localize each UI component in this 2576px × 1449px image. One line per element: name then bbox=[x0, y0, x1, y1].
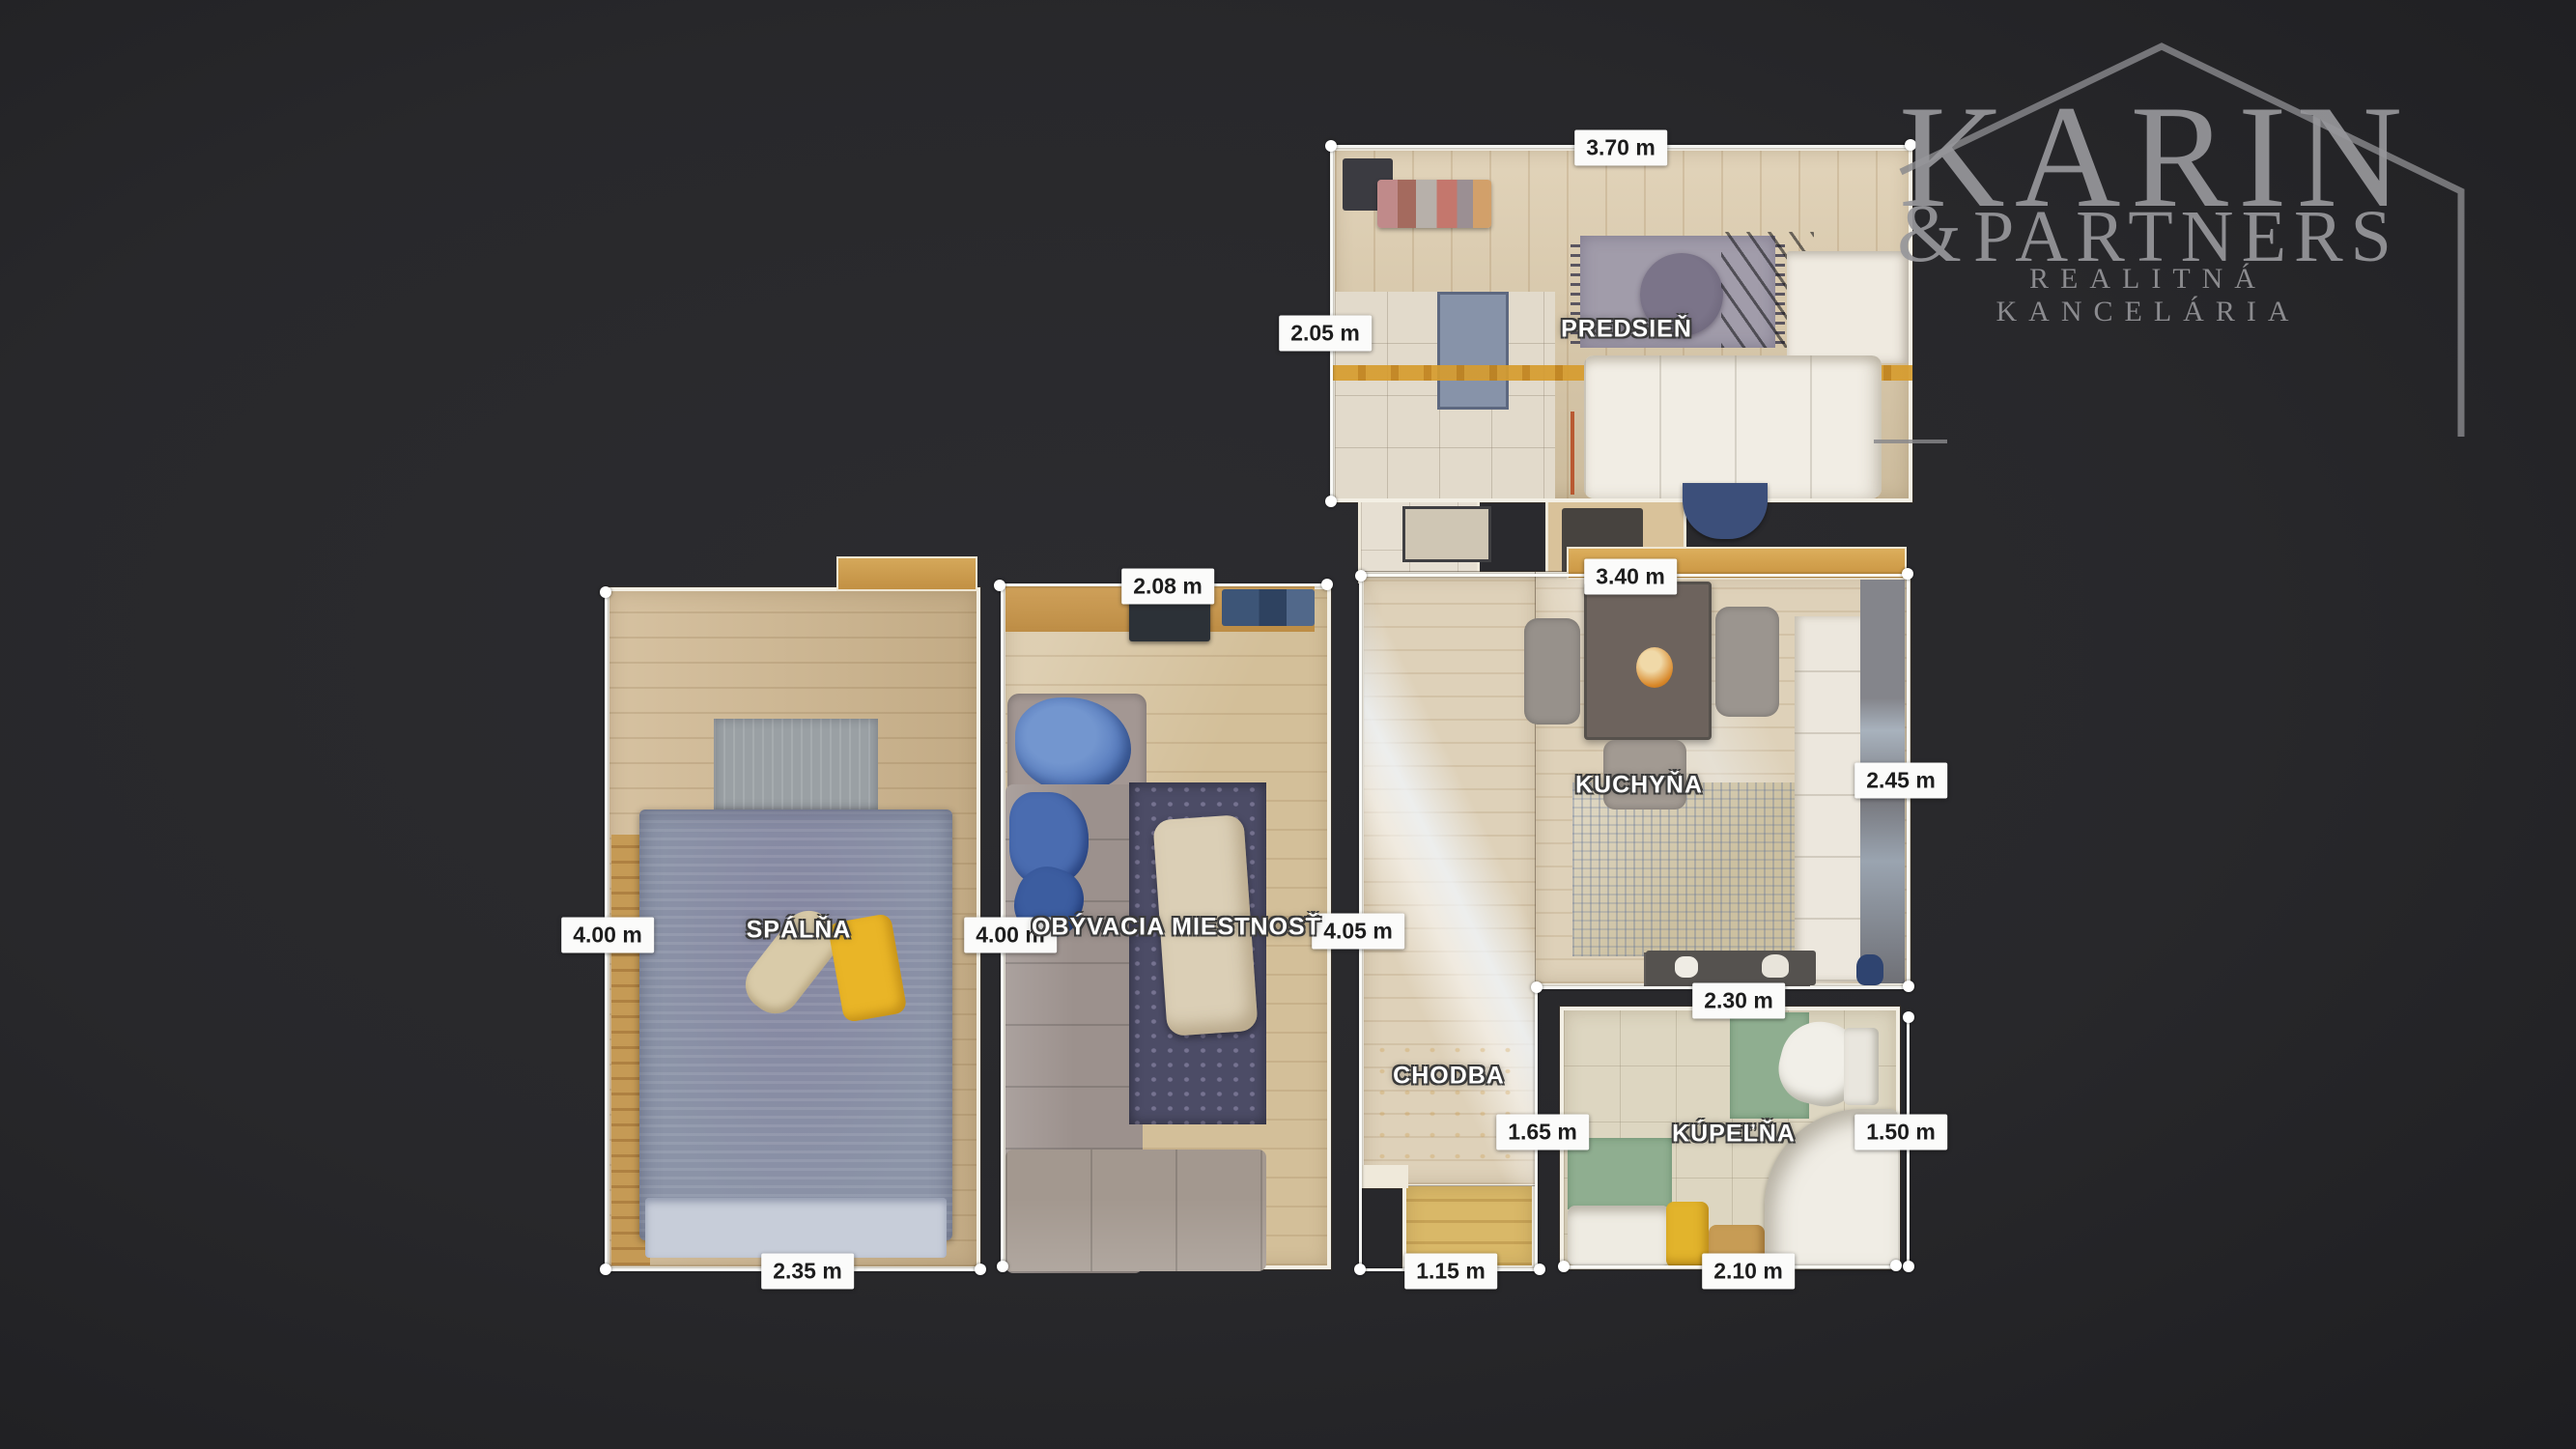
brand-tagline: REALITNÁ KANCELÁRIA bbox=[1899, 263, 2397, 328]
kitchen-rug bbox=[1572, 782, 1806, 956]
floor-speckle bbox=[1370, 1039, 1524, 1175]
room-label-predsien: PREDSIEŇ bbox=[1561, 316, 1692, 344]
measurement-dot bbox=[1903, 1261, 1914, 1272]
brand-logo: KARIN & PARTNERS REALITNÁ KANCELÁRIA bbox=[1835, 19, 2569, 464]
chair bbox=[1524, 618, 1580, 724]
measurement-dot bbox=[994, 580, 1005, 591]
measurement-dot bbox=[1325, 140, 1337, 152]
hall-shelf bbox=[1362, 1165, 1408, 1188]
vase bbox=[1856, 954, 1883, 985]
blue-table bbox=[1683, 483, 1768, 539]
measurement-dot bbox=[997, 1261, 1008, 1272]
counter-item bbox=[1675, 956, 1698, 978]
measurement-dot bbox=[1903, 1011, 1914, 1023]
measurement-dot bbox=[1325, 496, 1337, 507]
room-label-kupelna: KÚPEĽŇA bbox=[1672, 1121, 1796, 1149]
dimension-chip-chodba-depth: 4.05 m bbox=[1312, 914, 1404, 950]
fruit-bowl bbox=[1636, 647, 1673, 688]
measurement-dot bbox=[1531, 981, 1543, 993]
dimension-chip-chodba-width: 1.15 m bbox=[1404, 1254, 1497, 1290]
dimension-chip-kuchyna-depth: 2.45 m bbox=[1854, 763, 1947, 799]
dimension-chip-kupelna-width: 2.10 m bbox=[1702, 1254, 1795, 1290]
red-line-artifact bbox=[1571, 412, 1574, 495]
measurement-dot bbox=[600, 1264, 611, 1275]
measurement-dot bbox=[1321, 579, 1333, 590]
measurement-dot bbox=[1534, 1264, 1545, 1275]
bedroom-wardrobe bbox=[836, 556, 977, 591]
bedroom-rug bbox=[714, 719, 878, 810]
measurement-dot bbox=[600, 586, 611, 598]
room-label-spalna: SPÁLŇA bbox=[747, 917, 852, 945]
measurement-dot bbox=[1355, 570, 1367, 582]
dimension-chip-spalna-depth: 4.00 m bbox=[561, 918, 654, 953]
dimension-chip-predsien-width: 3.70 m bbox=[1574, 130, 1667, 166]
room-chodba bbox=[1360, 572, 1536, 1188]
dimension-chip-obyvacia-top: 2.08 m bbox=[1121, 569, 1214, 605]
measurement-dot bbox=[1890, 1260, 1902, 1271]
washbasin bbox=[1568, 1206, 1670, 1265]
dimension-chip-kuchyna-bottom: 2.30 m bbox=[1692, 983, 1785, 1019]
room-label-kuchyna: KUCHYŇA bbox=[1575, 772, 1703, 800]
vanity-counter bbox=[1646, 951, 1816, 985]
dimension-chip-spalna-width: 2.35 m bbox=[761, 1254, 854, 1290]
room-label-obyvacia: OBÝVACIA MIESTNOSŤ bbox=[1032, 914, 1321, 942]
dimension-chip-kuchyna-width: 3.40 m bbox=[1584, 559, 1677, 595]
bed bbox=[639, 810, 952, 1240]
bed-sheet bbox=[645, 1198, 947, 1258]
passage-mat bbox=[1402, 506, 1491, 562]
floor-plan-render: 3.70 m 2.05 m 2.08 m 3.40 m 2.45 m 4.00 … bbox=[0, 0, 2576, 1449]
measurement-dot bbox=[1354, 1264, 1366, 1275]
shelf-items bbox=[1222, 589, 1315, 626]
counter-white bbox=[1795, 616, 1862, 981]
dimension-chip-predsien-depth: 2.05 m bbox=[1279, 316, 1372, 352]
chair bbox=[1715, 607, 1779, 717]
measurement-dot bbox=[1902, 568, 1913, 580]
measurement-dot bbox=[975, 1264, 986, 1275]
sideboard bbox=[1377, 180, 1491, 228]
measurement-dot bbox=[1903, 980, 1914, 992]
counter-item bbox=[1762, 954, 1789, 978]
room-label-chodba: CHODBA bbox=[1393, 1063, 1505, 1091]
measurement-dot bbox=[1558, 1261, 1570, 1272]
toilet-tank bbox=[1844, 1028, 1879, 1105]
door-mat bbox=[1437, 292, 1509, 410]
dimension-chip-kupelna-left: 1.65 m bbox=[1496, 1115, 1589, 1151]
sofa-seat bbox=[1005, 1150, 1266, 1271]
dimension-chip-kupelna-right: 1.50 m bbox=[1854, 1115, 1947, 1151]
